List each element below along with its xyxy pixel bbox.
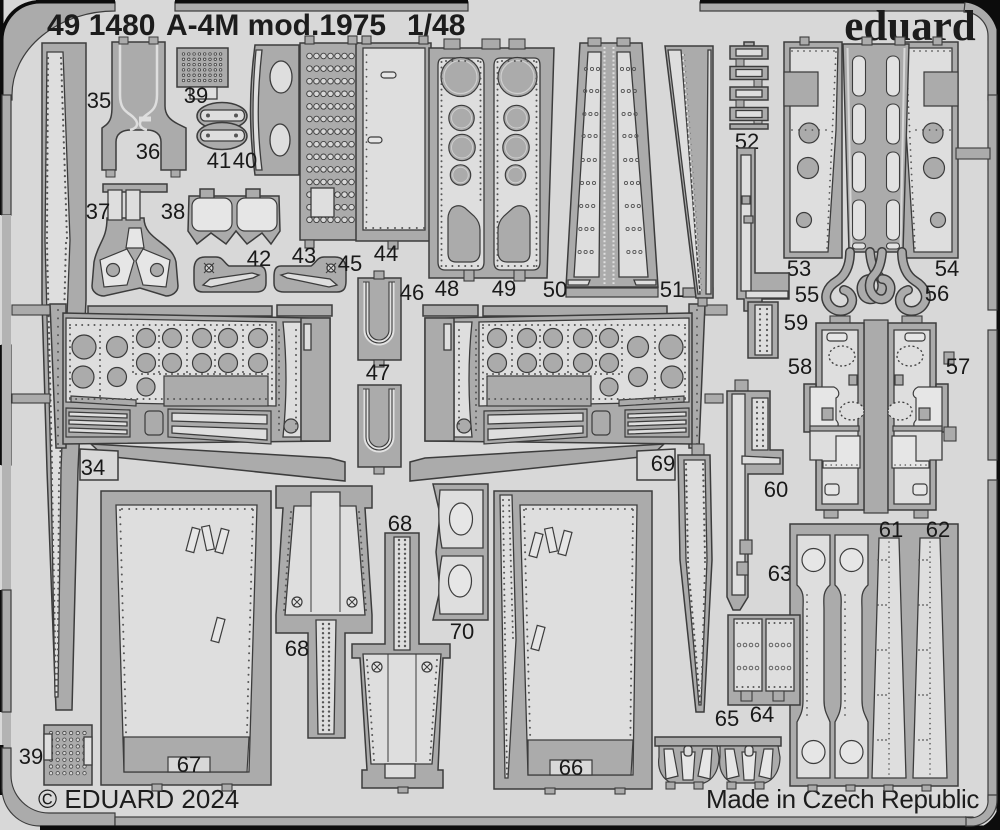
svg-text:69: 69 (651, 451, 675, 476)
svg-text:44: 44 (374, 241, 398, 266)
svg-text:42: 42 (247, 246, 271, 271)
svg-text:45: 45 (338, 251, 362, 276)
svg-text:70: 70 (450, 619, 474, 644)
svg-text:34: 34 (81, 455, 105, 480)
svg-text:65: 65 (715, 706, 739, 731)
svg-text:Made in Czech Republic: Made in Czech Republic (706, 784, 979, 814)
svg-text:35: 35 (87, 88, 111, 113)
svg-text:48: 48 (435, 276, 459, 301)
svg-text:68: 68 (388, 511, 412, 536)
svg-text:46: 46 (400, 280, 424, 305)
svg-text:38: 38 (161, 199, 185, 224)
svg-text:54: 54 (935, 256, 959, 281)
svg-text:39: 39 (184, 83, 208, 108)
svg-text:57: 57 (946, 354, 970, 379)
svg-text:49 1480: 49 1480 (47, 9, 155, 42)
svg-text:39: 39 (19, 744, 43, 769)
svg-text:1/48: 1/48 (407, 9, 465, 42)
svg-text:63: 63 (768, 561, 792, 586)
svg-text:50: 50 (543, 277, 567, 302)
svg-text:36: 36 (136, 139, 160, 164)
svg-text:62: 62 (926, 517, 950, 542)
svg-text:40: 40 (233, 148, 257, 173)
svg-text:37: 37 (86, 199, 110, 224)
svg-text:51: 51 (660, 277, 684, 302)
svg-text:61: 61 (879, 517, 903, 542)
svg-text:41: 41 (207, 148, 231, 173)
svg-text:55: 55 (795, 282, 819, 307)
svg-text:64: 64 (750, 702, 774, 727)
svg-text:68: 68 (285, 636, 309, 661)
svg-text:59: 59 (784, 310, 808, 335)
svg-text:© EDUARD 2024: © EDUARD 2024 (38, 784, 239, 814)
svg-text:53: 53 (787, 256, 811, 281)
svg-text:49: 49 (492, 276, 516, 301)
svg-text:58: 58 (788, 354, 812, 379)
svg-text:67: 67 (177, 752, 201, 777)
svg-text:60: 60 (764, 477, 788, 502)
svg-text:47: 47 (366, 360, 390, 385)
svg-text:66: 66 (559, 755, 583, 780)
svg-text:56: 56 (925, 281, 949, 306)
